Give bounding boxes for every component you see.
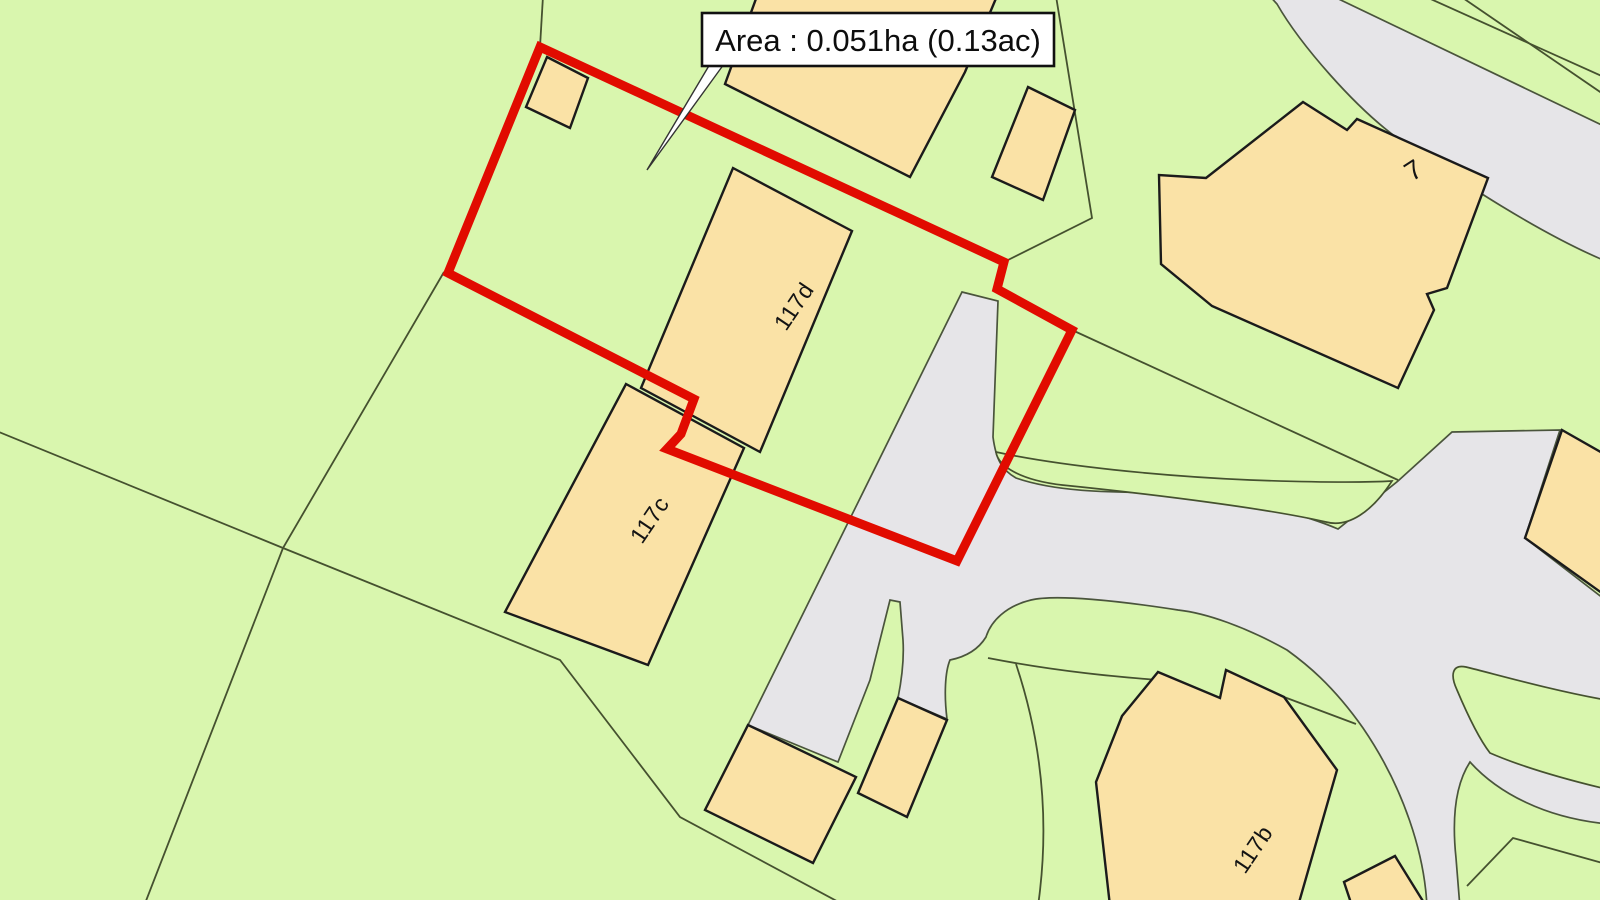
map-canvas: Area : 0.051ha (0.13ac) 117d 117c 117b 7 <box>0 0 1600 900</box>
site-plan-map[interactable]: Area : 0.051ha (0.13ac) 117d 117c 117b 7 <box>0 0 1600 900</box>
area-annotation-text: Area : 0.051ha (0.13ac) <box>715 23 1041 58</box>
